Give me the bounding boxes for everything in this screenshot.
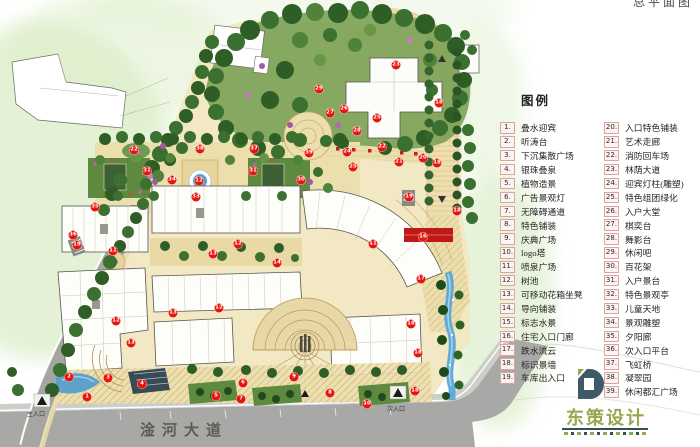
legend-item-number: 23. [604, 164, 619, 176]
legend-item: 34. 景观雕塑 [604, 315, 700, 329]
legend-item: 29. 休闲吧 [604, 246, 700, 260]
legend-item: 33. 儿童天地 [604, 302, 700, 316]
legend-item: 2. 听涛台 [500, 135, 600, 149]
legend-item-label: 下沉集散广场 [521, 149, 574, 162]
legend-item-label: 迎宾灯柱(雕塑) [625, 177, 684, 190]
legend-item-label: 跌水流云 [521, 344, 556, 357]
legend-item: 17. 跌水流云 [500, 343, 600, 357]
legend-item-number: 21. [604, 136, 619, 148]
sheet-title-partial: 总平面图 [633, 0, 693, 10]
legend-item-number: 1. [500, 122, 515, 134]
legend-item-number: 31. [604, 275, 619, 287]
legend-item-label: 入户景台 [625, 274, 660, 287]
legend-item: 25. 特色组团绿化 [604, 190, 700, 204]
legend-item-number: 18. [500, 358, 515, 370]
legend-item-number: 11. [500, 261, 515, 273]
logo-d-icon [575, 368, 605, 402]
legend-item: 13. 可移动花箱坐凳 [500, 288, 600, 302]
legend-item: 39. 休闲都汇广场 [604, 385, 700, 399]
legend-item-number: 19. [500, 372, 515, 384]
legend-item: 16. 住宅入口门廊 [500, 329, 600, 343]
legend-item: 6. 广告景观灯 [500, 190, 600, 204]
legend-item-label: logo塔 [521, 246, 545, 259]
master-plan-sheet: 1234567891011111212121213131314161718181… [0, 0, 700, 447]
legend-item-number: 25. [604, 192, 619, 204]
legend-item: 10. logo塔 [500, 246, 600, 260]
legend-item-label: 百花架 [625, 260, 651, 273]
legend-item: 5. 植物造景 [500, 177, 600, 191]
legend-item: 3. 下沉集散广场 [500, 149, 600, 163]
legend-item: 38. 凝翠园 [604, 371, 700, 385]
legend-item: 31. 入户景台 [604, 274, 700, 288]
legend-item: 4. 银珠叠泉 [500, 163, 600, 177]
legend-item-number: 4. [500, 164, 515, 176]
legend-item-number: 2. [500, 136, 515, 148]
legend-item-label: 标志水景 [521, 316, 556, 329]
legend-item-number: 24. [604, 178, 619, 190]
legend-item-number: 26. [604, 206, 619, 218]
logo-underline [562, 428, 648, 430]
legend-item: 28. 舞影台 [604, 232, 700, 246]
legend-item-label: 入户大堂 [625, 205, 660, 218]
logo-text: 东策设计 [560, 404, 652, 430]
legend-item-label: 树池 [521, 274, 539, 287]
legend-item-label: 凝翠园 [625, 371, 651, 384]
legend-item-number: 15. [500, 317, 515, 329]
legend-item-number: 34. [604, 317, 619, 329]
legend-item: 36. 次入口平台 [604, 343, 700, 357]
legend-item-number: 8. [500, 219, 515, 231]
legend-item: 26. 入户大堂 [604, 204, 700, 218]
legend-item-label: 植物造景 [521, 177, 556, 190]
legend-item-label: 可移动花箱坐凳 [521, 288, 583, 301]
legend-item: 35. 夕阳廊 [604, 329, 700, 343]
road-name-label: 淦河大道 [140, 419, 228, 440]
legend-item-label: 特色铺装 [521, 219, 556, 232]
legend-item-number: 20. [604, 122, 619, 134]
legend-item: 1. 叠水迎宾 [500, 121, 600, 135]
legend-item-number: 22. [604, 150, 619, 162]
legend-item: 12. 树池 [500, 274, 600, 288]
legend-item-label: 次入口平台 [625, 344, 669, 357]
legend-item-number: 39. [604, 386, 619, 398]
legend-item-label: 入口特色铺装 [625, 121, 678, 134]
main-entrance-label: 主入口 [27, 409, 45, 418]
legend-item-number: 17. [500, 344, 515, 356]
legend-item-label: 休闲吧 [625, 246, 651, 259]
legend-item-number: 5. [500, 178, 515, 190]
legend-item: 37. 飞虹桥 [604, 357, 700, 371]
legend-item-label: 导向铺装 [521, 302, 556, 315]
legend-column-1: 1. 叠水迎宾 2. 听涛台 3. 下沉集散广场 4. 银珠叠泉 5. 植物造景 [500, 121, 600, 385]
legend-item-number: 36. [604, 344, 619, 356]
legend-item-label: 标识景墙 [521, 358, 556, 371]
legend-item-label: 儿童天地 [625, 302, 660, 315]
legend-item-label: 银珠叠泉 [521, 163, 556, 176]
legend-item-label: 消防回车场 [625, 149, 669, 162]
legend-item-label: 艺术走廊 [625, 135, 660, 148]
legend-item-label: 舞影台 [625, 233, 651, 246]
legend-panel: 图例 1. 叠水迎宾 2. 听涛台 3. 下沉集散广场 4. 银珠叠泉 [498, 90, 698, 121]
legend-item-label: 喷泉广场 [521, 260, 556, 273]
legend-item: 32. 特色景观亭 [604, 288, 700, 302]
legend-item-number: 10. [500, 247, 515, 259]
legend-item-number: 27. [604, 219, 619, 231]
legend-item: 20. 入口特色铺装 [604, 121, 700, 135]
legend-item-label: 广告景观灯 [521, 191, 565, 204]
legend-item-number: 16. [500, 331, 515, 343]
legend-item-label: 林荫大道 [625, 163, 660, 176]
legend-item-label: 特色景观亭 [625, 288, 669, 301]
legend-item-number: 38. [604, 372, 619, 384]
legend-item-label: 听涛台 [521, 135, 547, 148]
legend-item-label: 景观雕塑 [625, 316, 660, 329]
legend-item: 15. 标志水景 [500, 315, 600, 329]
legend-item-number: 32. [604, 289, 619, 301]
legend-item-number: 33. [604, 303, 619, 315]
legend-item: 11. 喷泉广场 [500, 260, 600, 274]
legend-item: 21. 艺术走廊 [604, 135, 700, 149]
legend-item-number: 30. [604, 261, 619, 273]
legend-item-number: 29. [604, 247, 619, 259]
legend-item-label: 叠水迎宾 [521, 121, 556, 134]
legend-item: 9. 庆典广场 [500, 232, 600, 246]
legend-item-label: 休闲都汇广场 [625, 385, 678, 398]
legend-item-number: 28. [604, 233, 619, 245]
legend-item-label: 住宅入口门廊 [521, 330, 574, 343]
legend-item: 30. 百花架 [604, 260, 700, 274]
legend-item-label: 庆典广场 [521, 233, 556, 246]
legend-item-number: 35. [604, 331, 619, 343]
legend-item: 27. 棋奕台 [604, 218, 700, 232]
legend-item-number: 37. [604, 358, 619, 370]
legend-item-label: 飞虹桥 [625, 358, 651, 371]
legend-item-number: 12. [500, 275, 515, 287]
legend-item-label: 棋奕台 [625, 219, 651, 232]
legend-item-label: 车库出入口 [521, 371, 565, 384]
legend-item: 8. 特色铺装 [500, 218, 600, 232]
legend-item: 14. 导向铺装 [500, 302, 600, 316]
legend-item-label: 特色组团绿化 [625, 191, 678, 204]
legend-item-label: 无障碍通道 [521, 205, 565, 218]
legend-item-number: 14. [500, 303, 515, 315]
legend-column-2: 20. 入口特色铺装 21. 艺术走廊 22. 消防回车场 23. 林荫大道 2… [604, 121, 700, 399]
legend-item-label: 夕阳廊 [625, 330, 651, 343]
legend-item-number: 7. [500, 206, 515, 218]
legend-item-number: 13. [500, 289, 515, 301]
legend-item-number: 3. [500, 150, 515, 162]
logo-ticks [564, 432, 646, 435]
legend-item-number: 9. [500, 233, 515, 245]
legend-item: 7. 无障碍通道 [500, 204, 600, 218]
legend-item: 24. 迎宾灯柱(雕塑) [604, 177, 700, 191]
legend-item: 23. 林荫大道 [604, 163, 700, 177]
legend-item: 22. 消防回车场 [604, 149, 700, 163]
legend-title: 图例 [521, 90, 698, 109]
secondary-entrance-label: 次入口 [387, 404, 405, 413]
legend-item-number: 6. [500, 192, 515, 204]
